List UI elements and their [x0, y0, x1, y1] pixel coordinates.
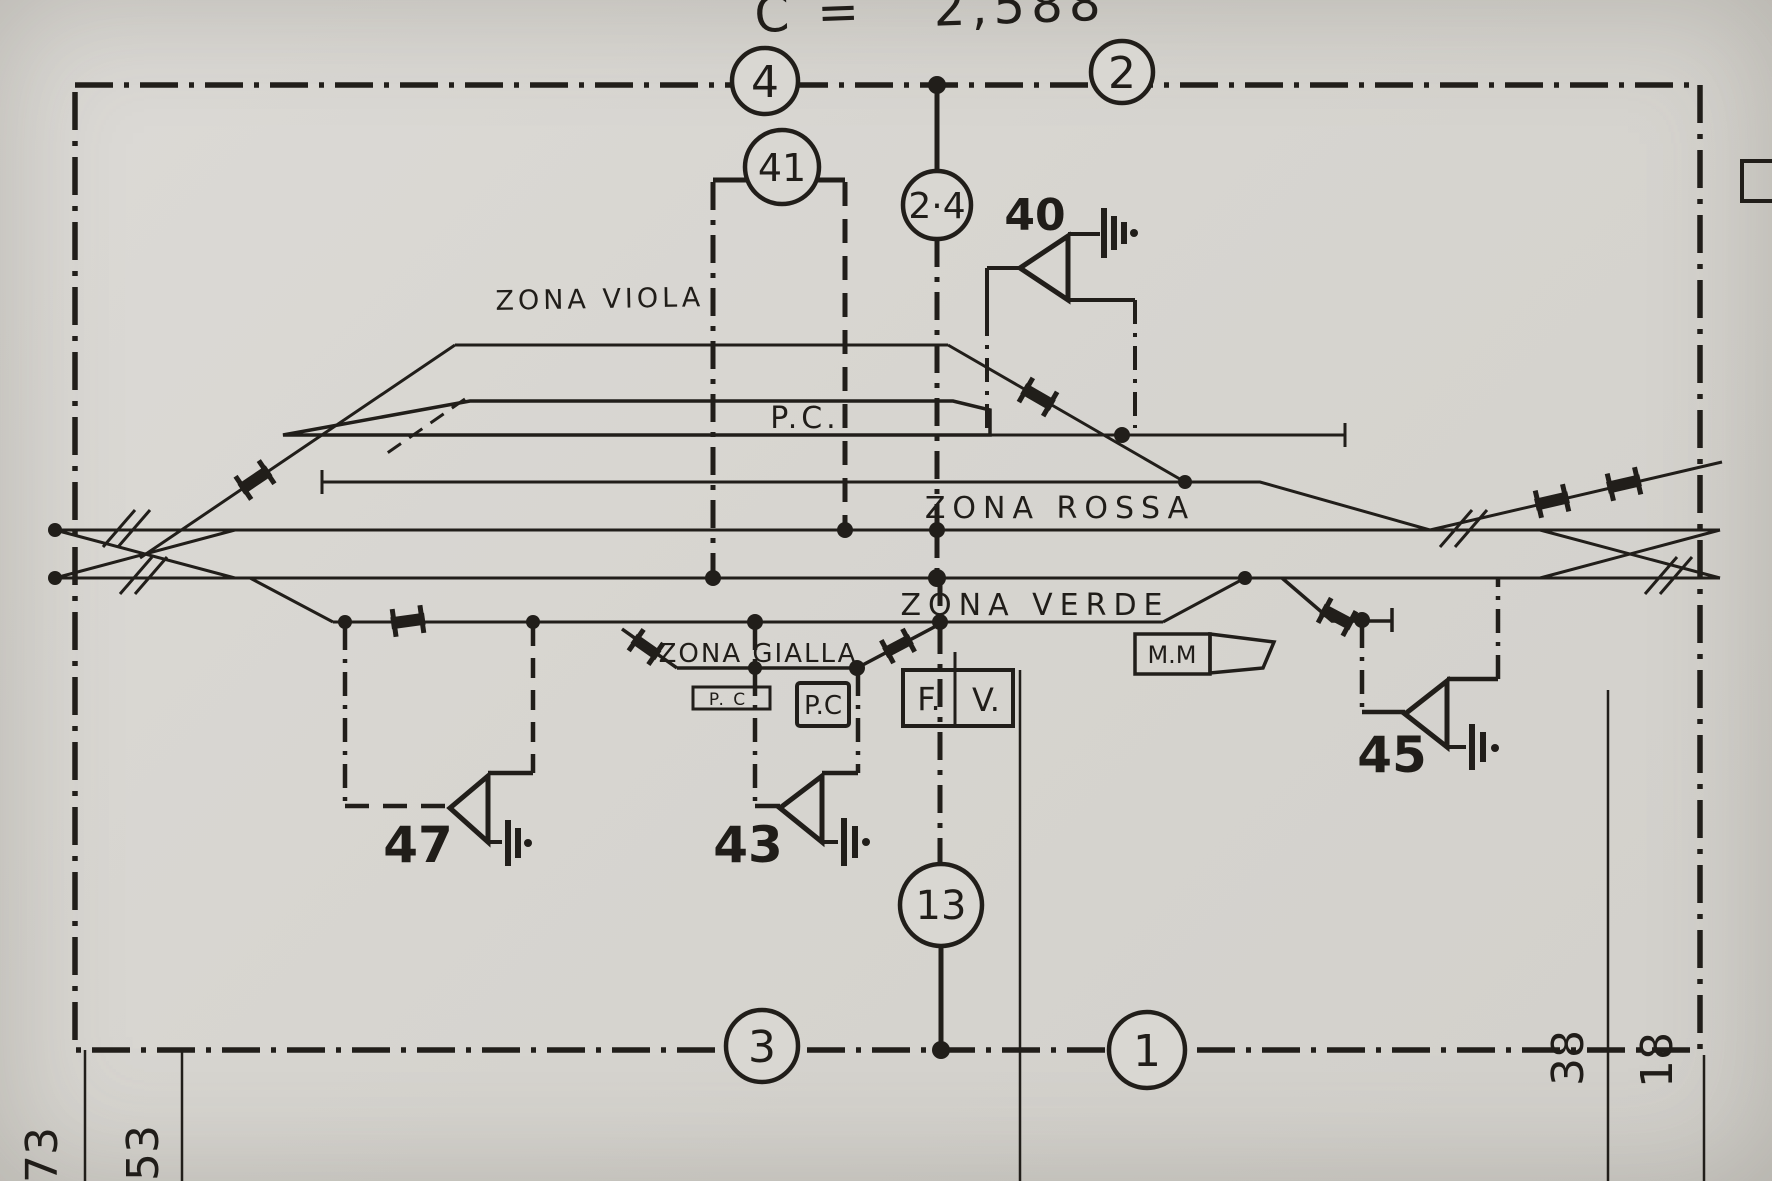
scanned-track-plan: C = ″ 2,588 [0, 0, 1772, 1181]
junction-dot [48, 523, 62, 537]
signal-43-label: 43 [713, 816, 783, 874]
viola-right-diagonal [948, 345, 1185, 482]
junction-dot [1238, 571, 1252, 585]
box-mm-wedge [1210, 634, 1274, 673]
platform-label: P.C. [770, 401, 839, 436]
ground-dot [862, 838, 870, 846]
junction-dot [932, 1041, 950, 1059]
verde-right-stub [1282, 578, 1392, 632]
zone-label-viola: ZONA VIOLA [495, 282, 704, 317]
junction-dot [1178, 475, 1192, 489]
signal-47-triangle [450, 776, 488, 842]
margin-number-73: 73 [17, 1127, 68, 1181]
signal-45-label: 45 [1357, 726, 1427, 784]
node-label-41: 41 [758, 146, 806, 190]
ground-symbol [1104, 208, 1124, 258]
box-fv-right-label: V. [972, 681, 1000, 719]
viola-loop [140, 345, 1430, 558]
zone-label-gialla: ZONA GIALLA [659, 639, 858, 669]
node-label-13: 13 [916, 883, 967, 929]
box-fv-left-label: F. [917, 680, 940, 718]
signal-40 [987, 208, 1135, 430]
ground-symbol [508, 820, 518, 866]
margin-number-18: 18 [1632, 1032, 1683, 1088]
node-label-2: 2 [1108, 48, 1136, 99]
right-crossover [1540, 530, 1720, 578]
margin-number-53: 53 [118, 1125, 169, 1181]
signal-47-label: 47 [383, 816, 453, 874]
siding-line-r1 [990, 423, 1345, 447]
platform-outline [283, 401, 990, 435]
right-track-break-marks [1440, 510, 1692, 594]
ground-dot [524, 839, 532, 847]
viola-dashed-spur [383, 399, 465, 456]
top-note: C = ″ 2,588 [753, 0, 1107, 44]
plan-border [75, 85, 1700, 1050]
zone-label-rossa: ZONA ROSSA [925, 491, 1195, 526]
junction-dot [705, 570, 721, 586]
box-pc-square-label: P.C [804, 691, 842, 721]
box-pc-flat-label: P. C [709, 690, 747, 710]
edge-box [1742, 161, 1772, 201]
siding-line-r2 [322, 470, 1430, 530]
signal-40-triangle [1020, 236, 1068, 300]
margin-number-38: 38 [1543, 1030, 1594, 1086]
node-label-24: 2·4 [908, 186, 965, 227]
junction-dot [929, 522, 945, 538]
track-diagram: C = ″ 2,588 [0, 0, 1772, 1181]
junction-dot [48, 571, 62, 585]
signal-40-label: 40 [1004, 190, 1065, 241]
junction-dot [837, 522, 853, 538]
junction-dot [1114, 427, 1130, 443]
viola-left-diagonal [140, 345, 455, 558]
box-mm-label: M.M [1147, 641, 1196, 669]
right-exit-diagonal [1430, 462, 1722, 530]
node-label-4: 4 [751, 57, 779, 108]
junction-dot [928, 569, 946, 587]
node-label-1: 1 [1133, 1026, 1161, 1077]
ground-dot [1130, 229, 1138, 237]
ground-symbol [1472, 724, 1483, 770]
signal-43-triangle [780, 776, 822, 842]
junction-dot [928, 76, 946, 94]
ground-dot [1491, 744, 1499, 752]
ground-symbol [844, 818, 855, 866]
node-label-3: 3 [748, 1022, 776, 1073]
